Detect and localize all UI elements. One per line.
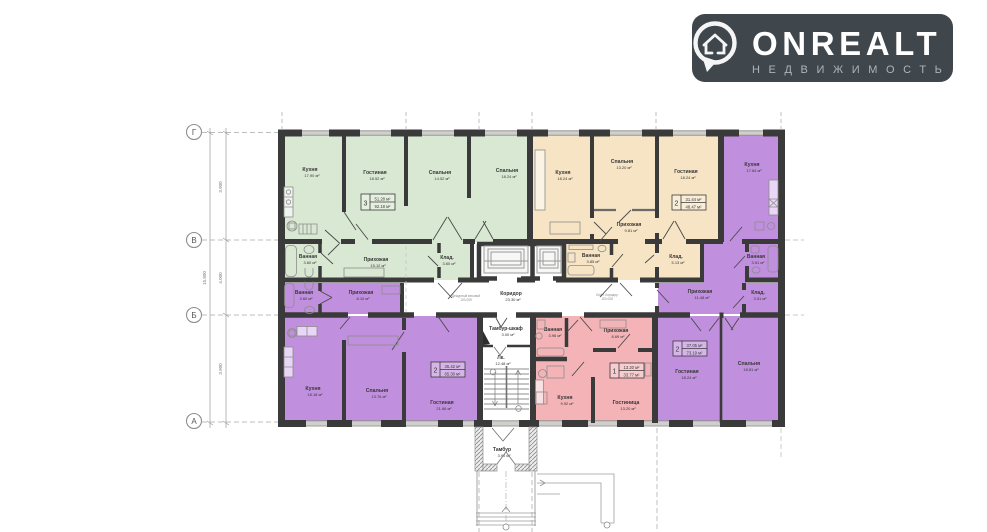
- svg-text:Б: Б: [191, 311, 196, 320]
- svg-text:33.77 м²: 33.77 м²: [624, 373, 641, 378]
- svg-text:8.10 м²: 8.10 м²: [357, 296, 371, 301]
- svg-text:9.92 м²: 9.92 м²: [561, 401, 575, 406]
- svg-text:2: 2: [676, 347, 680, 354]
- svg-text:18.24 м²: 18.24 м²: [680, 175, 696, 180]
- svg-text:37.05 м²: 37.05 м²: [687, 343, 704, 348]
- svg-text:3.60 м²: 3.60 м²: [443, 261, 457, 266]
- svg-text:18.24 м²: 18.24 м²: [501, 174, 517, 179]
- svg-text:13.20 м²: 13.20 м²: [616, 165, 632, 170]
- svg-text:18.81 м²: 18.81 м²: [743, 367, 759, 372]
- svg-text:В: В: [191, 236, 196, 245]
- svg-text:13.20 м²: 13.20 м²: [620, 406, 636, 411]
- svg-text:15.12 м²: 15.12 м²: [370, 263, 386, 268]
- svg-text:65.30 м²: 65.30 м²: [445, 372, 462, 377]
- svg-text:21.66 м²: 21.66 м²: [436, 406, 452, 411]
- svg-text:8.69 м²: 8.69 м²: [612, 334, 626, 339]
- svg-text:18.24 м²: 18.24 м²: [681, 375, 697, 380]
- svg-text:3.60 м²: 3.60 м²: [304, 260, 318, 265]
- svg-text:15.800: 15.800: [202, 271, 207, 285]
- svg-text:2: 2: [434, 368, 438, 375]
- svg-text:3: 3: [364, 201, 368, 208]
- svg-text:Г: Г: [192, 128, 197, 137]
- svg-text:2: 2: [675, 201, 679, 208]
- svg-text:ONREALT: ONREALT: [752, 25, 941, 62]
- svg-text:17.64 м²: 17.64 м²: [746, 168, 762, 173]
- svg-text:5.13 м²: 5.13 м²: [672, 260, 686, 265]
- svg-text:11.48 м²: 11.48 м²: [695, 295, 711, 300]
- svg-text:1: 1: [613, 369, 617, 376]
- svg-text:18.52 м²: 18.52 м²: [369, 176, 385, 181]
- svg-text:51.28 м²: 51.28 м²: [375, 197, 392, 202]
- svg-text:13.76 м²: 13.76 м²: [371, 394, 387, 399]
- svg-text:18.18 м²: 18.18 м²: [307, 392, 323, 397]
- svg-text:9.81 м²: 9.81 м²: [625, 228, 639, 233]
- svg-text:100.009: 100.009: [460, 298, 472, 302]
- svg-text:100.008: 100.008: [601, 297, 613, 301]
- svg-text:3.51 м²: 3.51 м²: [752, 260, 766, 265]
- svg-text:73.19 м²: 73.19 м²: [687, 351, 704, 356]
- svg-text:18.24 м²: 18.24 м²: [557, 176, 573, 181]
- svg-text:3.00 м²: 3.00 м²: [502, 332, 516, 337]
- svg-text:А: А: [191, 417, 197, 426]
- svg-text:3.51 м²: 3.51 м²: [754, 296, 768, 301]
- svg-text:3.900: 3.900: [218, 181, 223, 193]
- svg-text:4.000: 4.000: [218, 272, 223, 284]
- svg-text:13.20 м²: 13.20 м²: [624, 365, 641, 370]
- svg-text:Тамбур-шкаф: Тамбур-шкаф: [489, 325, 523, 332]
- svg-text:3.60 м²: 3.60 м²: [300, 296, 314, 301]
- svg-text:НЕДВИЖИМОСТЬ: НЕДВИЖИМОСТЬ: [752, 64, 950, 76]
- svg-text:12.48 м²: 12.48 м²: [495, 361, 511, 366]
- svg-text:Тамбур: Тамбур: [493, 446, 511, 453]
- svg-text:14.52 м²: 14.52 м²: [434, 176, 450, 181]
- svg-text:31.44 м²: 31.44 м²: [686, 197, 703, 202]
- svg-text:3.900: 3.900: [218, 363, 223, 375]
- svg-text:48.47 м²: 48.47 м²: [686, 205, 703, 210]
- svg-text:17.90 м²: 17.90 м²: [304, 173, 320, 178]
- svg-text:92.18 м²: 92.18 м²: [375, 204, 392, 209]
- svg-text:3.96 м²: 3.96 м²: [549, 333, 563, 338]
- svg-text:35.42 м²: 35.42 м²: [445, 364, 462, 369]
- svg-text:23.30 м²: 23.30 м²: [505, 297, 521, 302]
- svg-text:3.85 м²: 3.85 м²: [587, 259, 601, 264]
